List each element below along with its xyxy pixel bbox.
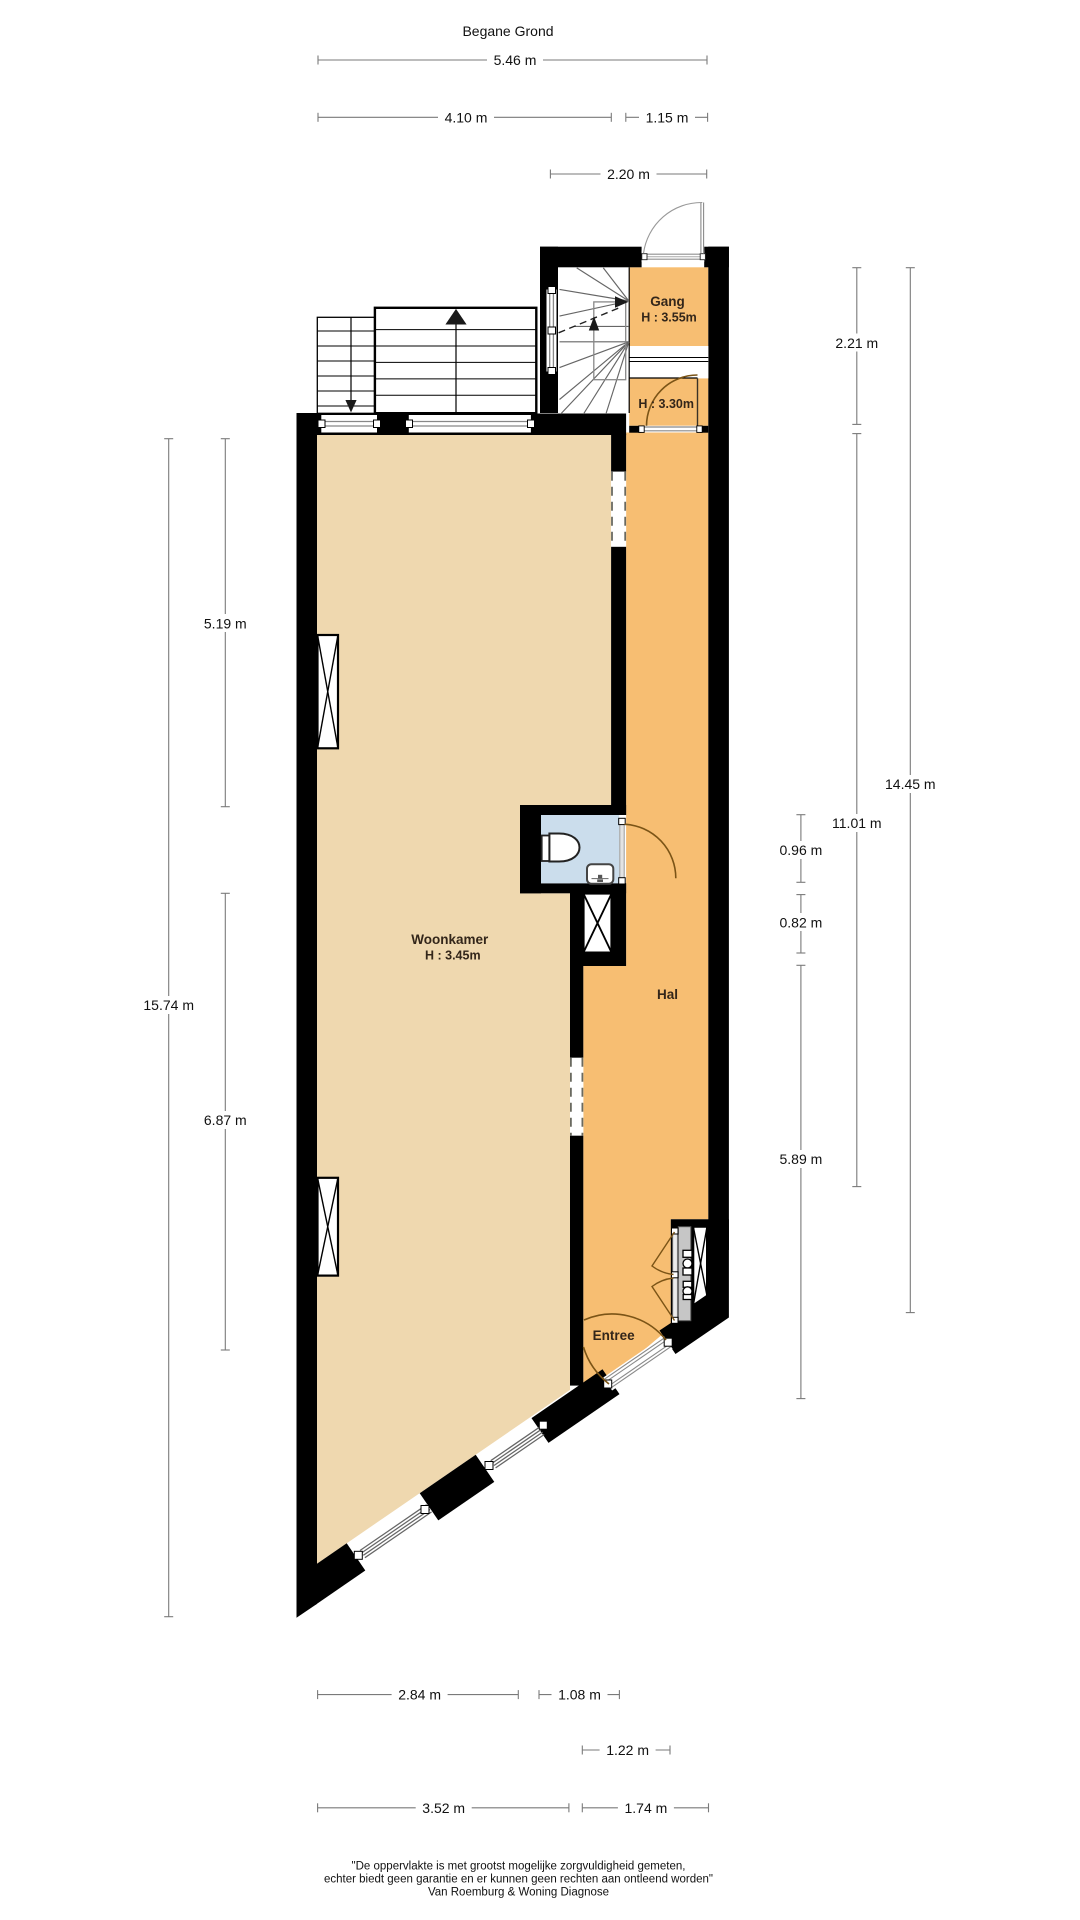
svg-text:2.84 m: 2.84 m	[398, 1687, 441, 1703]
svg-text:Entree: Entree	[593, 1328, 636, 1343]
svg-text:5.19 m: 5.19 m	[204, 615, 247, 631]
svg-text:15.74 m: 15.74 m	[143, 997, 194, 1013]
svg-text:"De oppervlakte is met grootst: "De oppervlakte is met grootst mogelijke…	[352, 1861, 686, 1873]
svg-text:0.82 m: 0.82 m	[779, 914, 822, 930]
svg-text:Gang: Gang	[650, 294, 685, 309]
svg-text:0.96 m: 0.96 m	[779, 842, 822, 858]
svg-text:4.10 m: 4.10 m	[445, 109, 488, 125]
svg-text:H : 3.45m: H : 3.45m	[425, 949, 481, 963]
svg-text:H : 3.30m: H : 3.30m	[638, 397, 694, 411]
svg-text:H : 3.55m: H : 3.55m	[641, 311, 697, 325]
svg-text:14.45 m: 14.45 m	[885, 776, 936, 792]
svg-text:Van Roemburg & Woning Diagnose: Van Roemburg & Woning Diagnose	[428, 1887, 609, 1899]
svg-text:6.87 m: 6.87 m	[204, 1112, 247, 1128]
svg-text:Hal: Hal	[657, 987, 678, 1002]
svg-text:2.21 m: 2.21 m	[835, 335, 878, 351]
svg-text:Woonkamer: Woonkamer	[411, 932, 489, 947]
svg-text:Begane Grond: Begane Grond	[462, 23, 553, 39]
svg-text:1.15 m: 1.15 m	[646, 109, 689, 125]
svg-text:1.74 m: 1.74 m	[624, 1800, 667, 1816]
svg-text:echter biedt geen garantie en: echter biedt geen garantie en er kunnen …	[324, 1874, 713, 1886]
svg-text:5.46 m: 5.46 m	[494, 52, 537, 68]
svg-text:11.01 m: 11.01 m	[832, 815, 882, 831]
svg-text:1.22 m: 1.22 m	[606, 1742, 649, 1758]
svg-text:5.89 m: 5.89 m	[779, 1151, 822, 1167]
svg-text:2.20 m: 2.20 m	[607, 166, 650, 182]
svg-text:3.52 m: 3.52 m	[422, 1800, 465, 1816]
svg-text:1.08 m: 1.08 m	[558, 1687, 601, 1703]
